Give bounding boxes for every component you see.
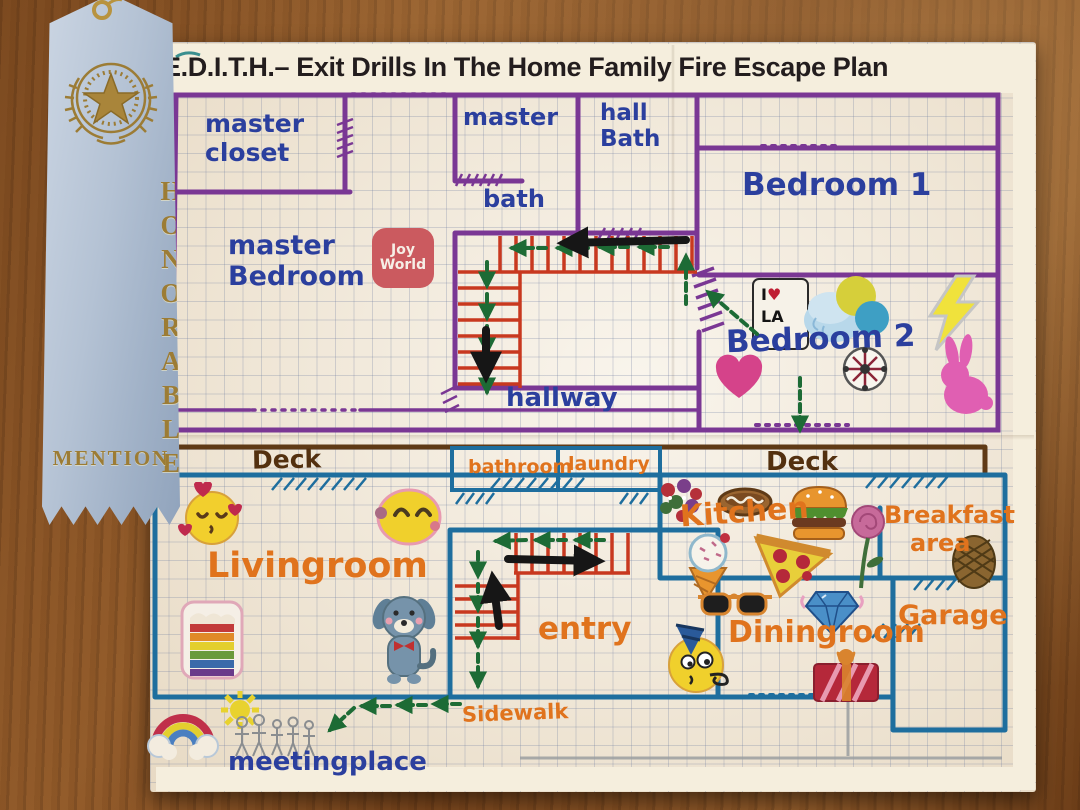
photo-scene: E.D.I.T.H.– Exit Drills In The Home Fami… xyxy=(0,0,1080,810)
room-label-livingroom: Livingroom xyxy=(207,546,428,586)
award-ribbon: HONORABLE MENTION xyxy=(36,0,186,525)
star-medallion-icon xyxy=(51,46,171,176)
room-label-entry: entry xyxy=(538,612,631,648)
ribbon-cord xyxy=(84,0,124,24)
paper-fold-crease-horizontal xyxy=(152,435,1034,440)
ribbon-word-mention: MENTION xyxy=(36,446,186,471)
room-label-master-bath-1: master xyxy=(463,104,558,132)
room-label-deck-right: Deck xyxy=(766,448,838,478)
rainbow-cake-sticker xyxy=(176,596,248,688)
blue-dog-sticker xyxy=(362,584,446,692)
ribbon-word-honorable: HONORABLE xyxy=(36,176,186,444)
label-meetingplace: meetingplace xyxy=(228,748,427,778)
room-label-laundry: laundry xyxy=(568,454,650,476)
room-label-breakfast-area: Breakfast area xyxy=(884,502,1015,557)
present-sticker xyxy=(810,644,884,708)
room-label-master-bath-2: bath xyxy=(483,186,545,214)
room-label-hall-bath: hall Bath xyxy=(600,100,660,153)
room-label-diningroom: Diningroom xyxy=(728,616,925,651)
plan-title: E.D.I.T.H.– Exit Drills In The Home Fami… xyxy=(163,52,1035,83)
room-label-bathroom: bathroom xyxy=(468,457,572,479)
room-label-garage: Garage xyxy=(898,600,1008,631)
room-label-master-bedroom: master Bedroom xyxy=(228,230,365,292)
joy-world-sticker: JoyWorld xyxy=(372,228,434,288)
room-label-hallway: hallway xyxy=(506,384,618,414)
room-label-bedroom-1: Bedroom 1 xyxy=(742,168,931,204)
pink-bunny-sticker xyxy=(928,333,994,421)
smile-emoji-sticker xyxy=(372,486,444,552)
label-sidewalk: Sidewalk xyxy=(462,699,569,727)
room-label-master-closet: master closet xyxy=(205,110,304,168)
room-label-deck-left: Deck xyxy=(252,445,322,475)
paper-fold-crease-vertical xyxy=(671,45,675,440)
rainbow-cloud-sticker xyxy=(146,684,220,766)
paper-right-margin xyxy=(1013,45,1035,790)
room-label-bedroom-2: Bedroom 2 xyxy=(725,319,916,361)
heart-kiss-emoji-sticker xyxy=(176,482,248,552)
